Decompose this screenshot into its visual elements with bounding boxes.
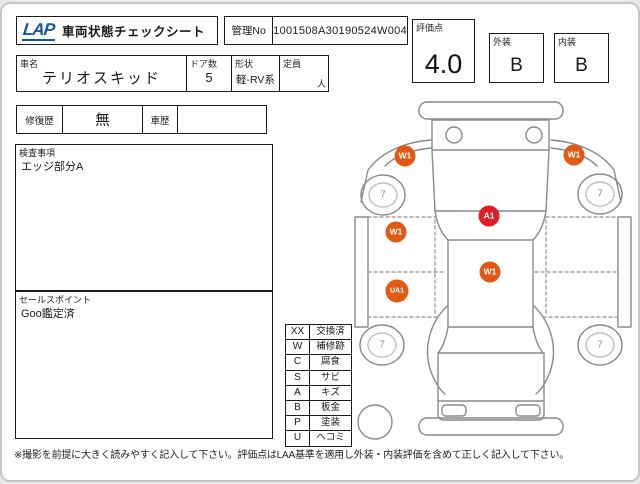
legend-row: P塗装: [286, 415, 351, 430]
inspection-items-value: エッジ部分A: [21, 158, 83, 174]
legend-row: B板金: [286, 400, 351, 415]
damage-marker-w1: W1: [395, 146, 416, 167]
body-shape-label: 形状: [235, 57, 253, 70]
legend-code: S: [286, 371, 310, 385]
legend-row: Uヘコミ: [286, 430, 351, 445]
damage-marker-w1: W1: [564, 145, 585, 166]
car-history-value: [178, 106, 266, 133]
tail-light-right: [526, 127, 542, 143]
check-sheet: LAP 車両状態チェックシート 管理No 1001508A30190524W00…: [0, 2, 640, 482]
headlight-left: [442, 405, 466, 416]
inspection-items-box: 検査事項 エッジ部分A: [15, 144, 273, 291]
sales-points-value: Goo鑑定済: [21, 305, 75, 321]
sheet-title: 車両状態チェックシート: [62, 21, 205, 40]
exterior-grade-label: 外装: [493, 35, 511, 48]
interior-grade-label: 内装: [558, 35, 576, 48]
damage-marker-ua1: UA1: [386, 280, 409, 303]
exterior-grade-box: 外装 B: [489, 33, 544, 83]
side-sill-right: [618, 217, 631, 327]
wheel-depth-value: 7: [597, 189, 603, 200]
car-history-label: 車歴: [143, 106, 178, 133]
side-sill-left: [355, 217, 368, 327]
body-shape-cell: 形状 軽-RV系: [232, 56, 280, 91]
evaluation-score-box: 評価点 4.0: [412, 19, 475, 83]
repair-history-label: 修復歴: [17, 106, 63, 133]
car-name-label: 車名: [20, 57, 38, 70]
legend-code: C: [286, 355, 310, 369]
legend-meaning: 塗装: [310, 416, 351, 430]
management-number-box: 管理No 1001508A30190524W004: [224, 16, 408, 45]
sales-points-box: セールスポイント Goo鑑定済: [15, 291, 273, 439]
legend-code: W: [286, 340, 310, 354]
management-number-value: 1001508A30190524W004: [273, 17, 407, 44]
car-name-value: テリオスキッド: [17, 56, 186, 88]
management-number-label: 管理No: [225, 17, 273, 44]
body-shape-value: 軽-RV系: [232, 72, 279, 87]
history-row: 修復歴 無 車歴: [16, 105, 267, 134]
roof-edge-left: [432, 150, 435, 211]
legend-row: C腐食: [286, 354, 351, 369]
legend-meaning: ヘコミ: [310, 431, 351, 445]
legend-row: W補修跡: [286, 339, 351, 354]
wheel-depth-value: 7: [380, 190, 386, 201]
rear-panel: [432, 120, 549, 150]
evaluation-score-label: 評価点: [416, 21, 443, 34]
lap-logo: LAP: [22, 20, 57, 41]
spare-tire: [358, 405, 392, 439]
headlight-right: [516, 405, 540, 416]
windshield: [438, 327, 543, 353]
rear-bumper: [419, 102, 563, 119]
legend-code: P: [286, 416, 310, 430]
capacity-cell: 定員 人: [280, 56, 328, 91]
damage-marker-w1: W1: [480, 262, 501, 283]
damage-code-legend: XX交換済W補修跡C腐食SサビAキズB板金P塗装Uヘコミ: [285, 324, 352, 447]
legend-code: A: [286, 386, 310, 400]
legend-row: Aキズ: [286, 385, 351, 400]
legend-meaning: サビ: [310, 371, 351, 385]
evaluation-score-value: 4.0: [413, 49, 474, 80]
legend-meaning: キズ: [310, 386, 351, 400]
sheet-title-box: LAP 車両状態チェックシート: [16, 16, 218, 45]
repair-history-value: 無: [63, 106, 143, 133]
interior-grade-value: B: [555, 55, 608, 77]
vehicle-info-row: 車名 テリオスキッド ドア数 5 形状 軽-RV系 定員 人: [16, 55, 329, 92]
interior-grade-box: 内装 B: [554, 33, 609, 83]
car-damage-diagram: W1W1A1W1W1UA17777: [347, 94, 639, 459]
legend-row: XX交換済: [286, 325, 351, 339]
footer-note: ※撮影を前提に大きく読みやすく記入して下さい。評価点はLAA基準を適用し外装・内…: [14, 446, 629, 461]
legend-row: Sサビ: [286, 370, 351, 385]
capacity-unit: 人: [317, 77, 326, 90]
legend-code: B: [286, 401, 310, 415]
legend-code: XX: [286, 325, 310, 339]
exterior-grade-value: B: [490, 55, 543, 77]
car-name-cell: 車名 テリオスキッド: [17, 56, 187, 91]
legend-meaning: 交換済: [310, 325, 351, 339]
legend-code: U: [286, 431, 310, 445]
wheel-depth-value: 7: [379, 340, 385, 351]
wheel-depth-value: 7: [597, 340, 603, 351]
roof-edge-right: [546, 150, 549, 211]
legend-meaning: 板金: [310, 401, 351, 415]
doors-value: 5: [187, 70, 231, 85]
doors-label: ドア数: [190, 57, 217, 70]
legend-meaning: 腐食: [310, 355, 351, 369]
doors-cell: ドア数 5: [187, 56, 232, 91]
damage-marker-a1: A1: [479, 206, 500, 227]
damage-marker-w1: W1: [386, 222, 407, 243]
tail-light-left: [446, 127, 462, 143]
hood: [438, 353, 544, 420]
capacity-label: 定員: [283, 57, 301, 70]
front-fender-left: [428, 306, 447, 394]
legend-meaning: 補修跡: [310, 340, 351, 354]
